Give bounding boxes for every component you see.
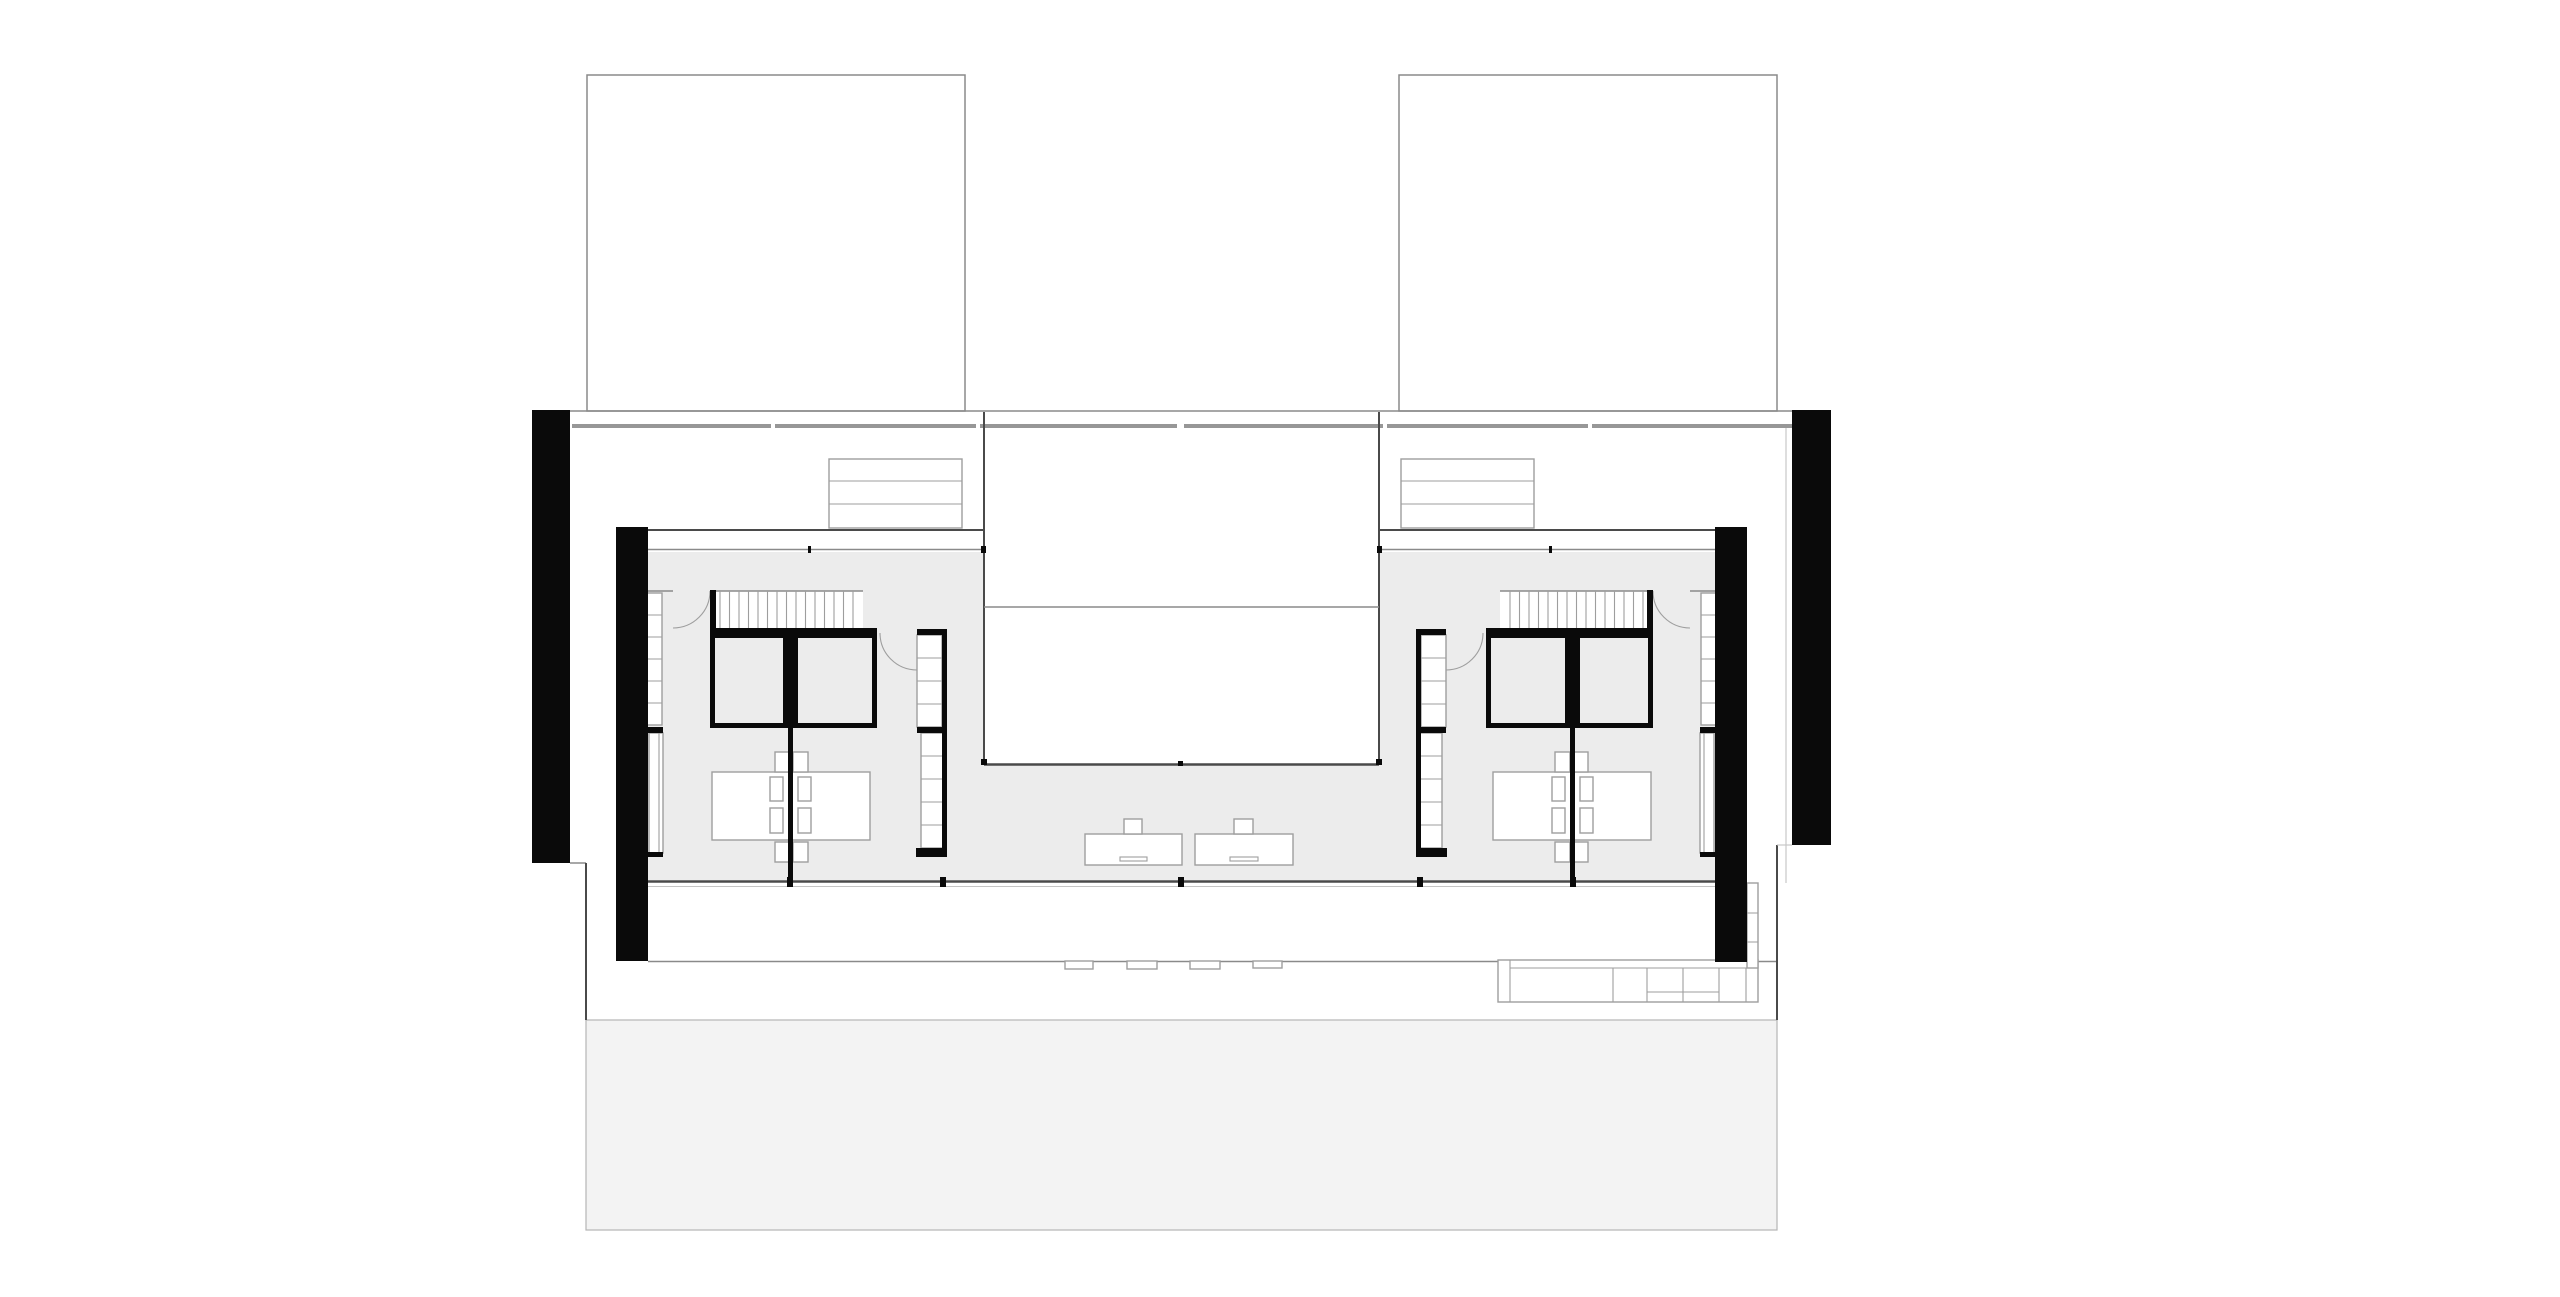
hall-closet-left (829, 459, 962, 528)
step-pad (1190, 961, 1220, 969)
wardrobe-stub (1416, 727, 1446, 733)
wall-end-tick (1417, 877, 1423, 887)
floor-plan-svg (0, 0, 2560, 1297)
shelf-stub (648, 852, 663, 857)
window-wall-tick (981, 546, 986, 553)
courtyard-center-tick (1178, 761, 1183, 766)
wall-end-tick (1570, 877, 1576, 887)
nightstand (793, 752, 808, 772)
pier-outer-left (532, 410, 570, 863)
basin-right (1195, 834, 1293, 865)
pillow (1580, 777, 1593, 801)
shelf-stub (1700, 727, 1715, 733)
stair-right-cheek-wall (1647, 590, 1653, 630)
wall-end-tick (940, 877, 946, 887)
basin-right-faucet (1234, 819, 1253, 834)
wardrobe-stub (1416, 629, 1446, 635)
wall-end-tick (787, 877, 793, 887)
service-shelf-strip (1747, 883, 1758, 968)
nightstand (1573, 752, 1588, 772)
window-mullion-tick (808, 546, 811, 553)
courtyard-corner-tick (1376, 759, 1382, 765)
pillow (798, 808, 811, 833)
wardrobe-stub (917, 629, 947, 635)
pillow (1552, 808, 1565, 833)
pier-outer-right (1792, 410, 1831, 845)
wardrobe-stub (916, 848, 945, 857)
courtyard-void (984, 552, 1379, 764)
floor-fills (586, 552, 1777, 1230)
shelf-stub (1700, 852, 1715, 857)
pier-inner-right (1715, 527, 1747, 962)
party-wall-left-suite (788, 628, 793, 884)
shelf-east-lower (1700, 733, 1714, 853)
party-wall-right-suite (1570, 628, 1575, 884)
step-pad (1065, 961, 1093, 969)
nightstand (775, 842, 790, 862)
shelf-stub (648, 727, 663, 733)
step-pad (1253, 961, 1282, 968)
pier-inner-left (616, 527, 648, 961)
roof-volume-left (587, 75, 965, 411)
pillow (770, 777, 783, 801)
wall-end-tick (1178, 877, 1184, 887)
nightstand (1555, 842, 1570, 862)
stair-left-cheek-wall (710, 590, 716, 630)
south-structure (648, 882, 1777, 970)
nightstand (793, 842, 808, 862)
wardrobe-stub (917, 727, 947, 733)
step-pad (1127, 961, 1157, 969)
hall-closet-right (1401, 459, 1534, 528)
wardrobe-wall-right-suite (1416, 629, 1421, 857)
roof-volume-right (1399, 75, 1777, 411)
basin-left-faucet (1124, 819, 1142, 834)
floor-plan-page (0, 0, 2560, 1297)
pillow (1580, 808, 1593, 833)
nightstand (775, 752, 790, 772)
lower-terrace (586, 1020, 1777, 1230)
courtyard-corner-tick (981, 759, 987, 765)
shelf-west-lower (649, 733, 663, 853)
pillow (770, 808, 783, 833)
nightstand (1573, 842, 1588, 862)
window-mullion-tick (1549, 546, 1552, 553)
north-facade (532, 411, 1831, 426)
pillow (798, 777, 811, 801)
nightstand (1555, 752, 1570, 772)
pillow (1552, 777, 1565, 801)
upper-volumes (587, 75, 1777, 411)
wardrobe-wall-left-suite (942, 629, 947, 857)
window-wall-tick (1377, 546, 1382, 553)
basin-left (1085, 834, 1182, 865)
wardrobe-stub (1418, 848, 1447, 857)
